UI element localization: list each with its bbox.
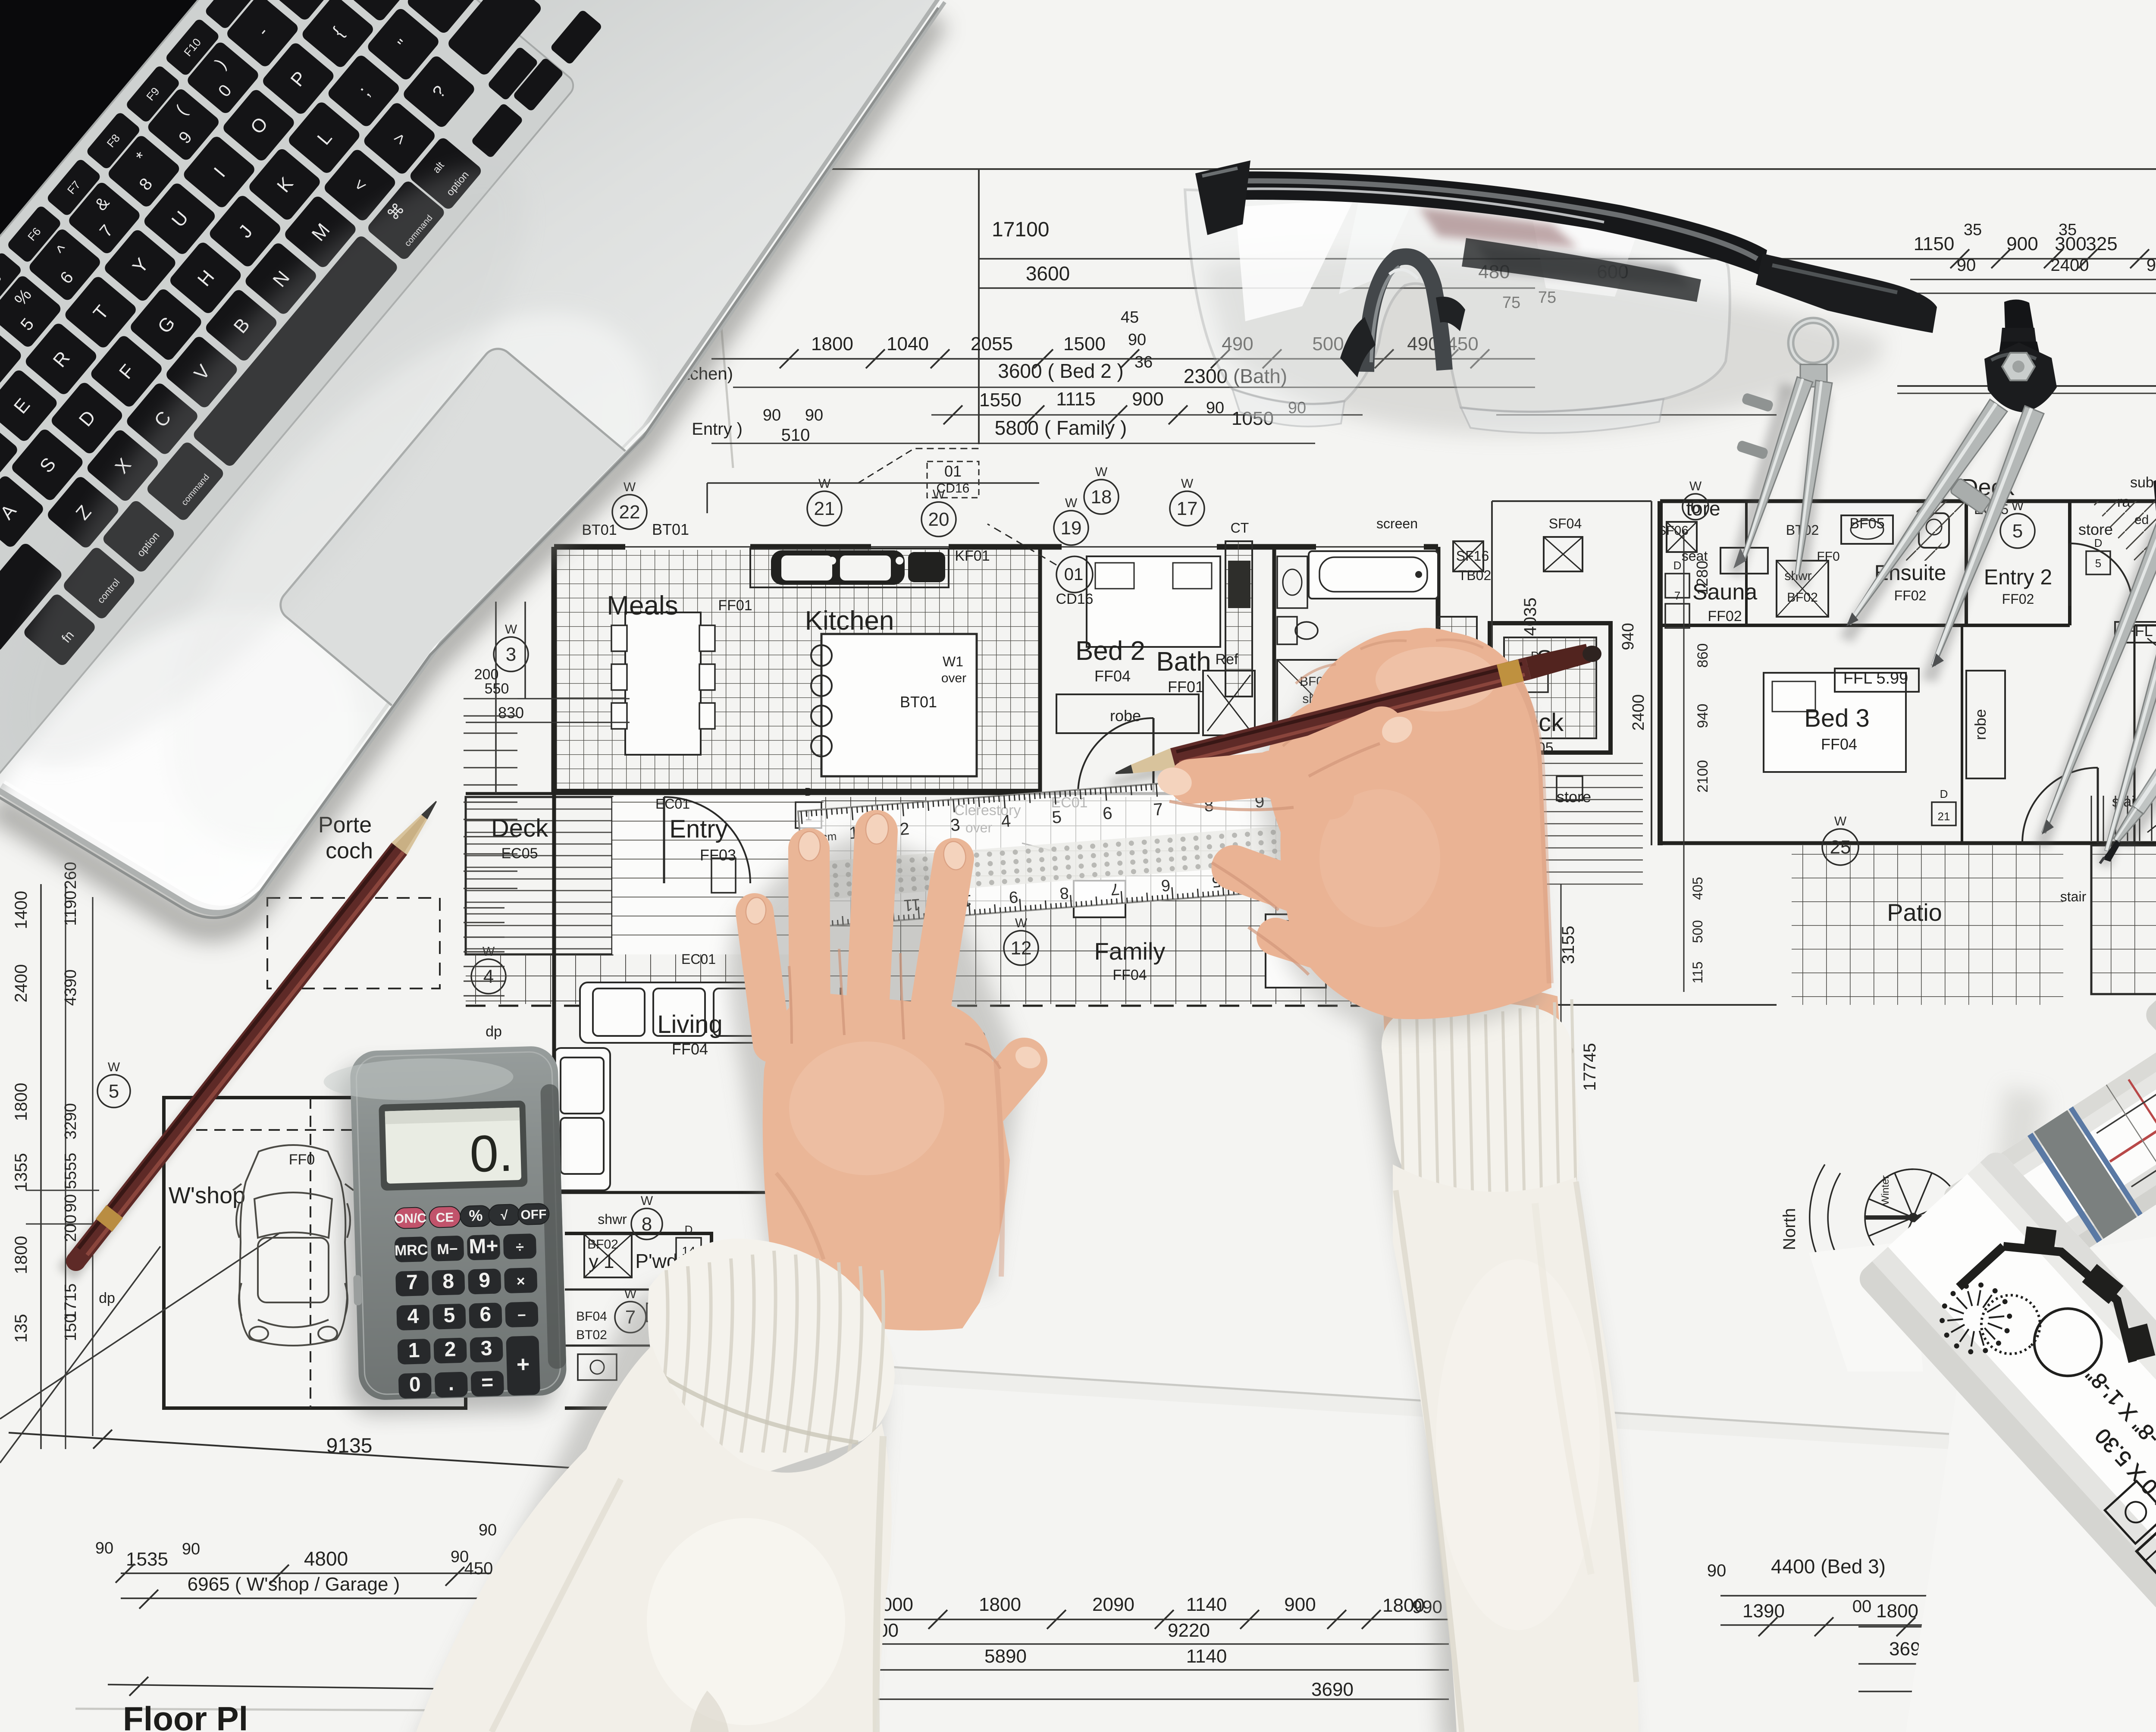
svg-text:18: 18 — [1091, 486, 1112, 508]
svg-text:W: W — [2012, 499, 2024, 513]
svg-text:KF01: KF01 — [955, 548, 990, 564]
svg-text:Kitchen: Kitchen — [805, 606, 894, 636]
svg-text:W: W — [641, 1194, 653, 1208]
svg-text:Family: Family — [1094, 938, 1166, 965]
svg-text:FF02: FF02 — [1708, 608, 1742, 624]
svg-text:Bed 2: Bed 2 — [1075, 636, 1145, 666]
svg-text:90: 90 — [62, 1194, 80, 1212]
svg-text:W: W — [505, 622, 517, 637]
svg-text:2: 2 — [899, 819, 910, 839]
svg-text:3690: 3690 — [1311, 1679, 1354, 1700]
svg-text:90: 90 — [2147, 256, 2156, 275]
svg-text:stair: stair — [2060, 889, 2087, 904]
svg-text:17745: 17745 — [1580, 1043, 1599, 1091]
svg-text:3: 3 — [950, 816, 961, 835]
svg-text:2400: 2400 — [12, 964, 31, 1003]
svg-text:2090: 2090 — [1092, 1594, 1134, 1615]
svg-text:W: W — [1065, 496, 1078, 510]
svg-text:4390: 4390 — [62, 970, 80, 1006]
svg-text:Entry 2: Entry 2 — [1984, 565, 2052, 589]
svg-text:21: 21 — [814, 498, 835, 519]
svg-text:1280: 1280 — [1693, 561, 1711, 595]
svg-text:Meals: Meals — [607, 591, 678, 621]
svg-text:90: 90 — [1206, 399, 1224, 417]
svg-text:3600 ( Bed 2 ): 3600 ( Bed 2 ) — [998, 360, 1124, 382]
svg-text:90: 90 — [1128, 331, 1146, 349]
svg-text:1390: 1390 — [1742, 1600, 1785, 1622]
svg-text:W: W — [1834, 814, 1847, 828]
svg-text:550: 550 — [485, 681, 509, 697]
svg-text:5: 5 — [2012, 521, 2023, 542]
svg-text:1800: 1800 — [1876, 1600, 1918, 1622]
svg-text:Ref: Ref — [1216, 651, 1238, 668]
svg-text:00: 00 — [1852, 1597, 1872, 1616]
svg-text:135: 135 — [12, 1314, 31, 1343]
svg-text:9220: 9220 — [1168, 1620, 1210, 1641]
svg-text:5: 5 — [443, 1304, 455, 1327]
svg-text:900: 900 — [1132, 389, 1163, 410]
svg-text:BT01: BT01 — [582, 522, 617, 538]
svg-text:2400: 2400 — [2051, 256, 2089, 275]
svg-text:dp: dp — [486, 1023, 502, 1040]
svg-text:1800: 1800 — [12, 1236, 31, 1274]
svg-text:1190: 1190 — [62, 891, 80, 926]
svg-text:%: % — [469, 1206, 483, 1224]
svg-text:4035: 4035 — [1521, 598, 1540, 636]
svg-text:CT: CT — [1231, 520, 1249, 536]
svg-text:−: − — [517, 1307, 526, 1324]
svg-text:ed: ed — [2134, 513, 2149, 527]
svg-text:9135: 9135 — [326, 1434, 373, 1457]
svg-text:Winter: Winter — [1880, 1175, 1891, 1205]
svg-text:M+: M+ — [469, 1234, 498, 1258]
svg-text:36: 36 — [1134, 353, 1153, 371]
svg-text:dp: dp — [99, 1290, 115, 1306]
svg-text:BF02: BF02 — [587, 1237, 618, 1252]
svg-text:W'shop: W'shop — [169, 1183, 245, 1208]
svg-text:8: 8 — [642, 1214, 652, 1235]
svg-text:35: 35 — [2059, 221, 2077, 239]
svg-text:3290: 3290 — [62, 1103, 80, 1140]
svg-text:12: 12 — [1011, 938, 1032, 959]
svg-text:store: store — [1557, 788, 1591, 806]
svg-text:√: √ — [501, 1208, 508, 1223]
svg-text:4: 4 — [1000, 812, 1012, 831]
svg-text:4800: 4800 — [304, 1547, 348, 1570]
svg-text:0: 0 — [409, 1373, 421, 1396]
svg-text:200: 200 — [62, 1214, 80, 1242]
svg-text:3: 3 — [480, 1337, 492, 1360]
svg-text:6: 6 — [1160, 876, 1171, 894]
svg-text:1400: 1400 — [12, 891, 31, 929]
svg-text:45: 45 — [1121, 308, 1139, 326]
svg-text:ra: ra — [2117, 494, 2130, 510]
svg-text:FF02: FF02 — [1894, 588, 1927, 603]
svg-text:0.: 0. — [469, 1124, 514, 1183]
svg-text:W: W — [1181, 477, 1194, 491]
svg-text:Entry: Entry — [669, 815, 727, 843]
svg-text:5800 ( Family ): 5800 ( Family ) — [995, 417, 1127, 439]
svg-text:.: . — [448, 1372, 454, 1395]
svg-text:5: 5 — [109, 1081, 119, 1102]
svg-text:W: W — [108, 1060, 120, 1074]
svg-text:35: 35 — [1964, 221, 1982, 239]
svg-text:1800: 1800 — [811, 333, 853, 355]
svg-text:BT01: BT01 — [900, 693, 937, 711]
svg-text:90: 90 — [1707, 1561, 1727, 1580]
svg-text:90: 90 — [95, 1539, 113, 1557]
svg-text:EC01: EC01 — [681, 951, 716, 967]
svg-text:17: 17 — [1177, 498, 1198, 519]
svg-text:17100: 17100 — [992, 218, 1049, 241]
svg-text:Bath: Bath — [1156, 647, 1211, 677]
svg-text:405: 405 — [1690, 877, 1705, 900]
svg-text:BT01: BT01 — [652, 521, 689, 538]
svg-text:22: 22 — [619, 502, 640, 523]
svg-text:940: 940 — [1695, 704, 1711, 728]
svg-text:screen: screen — [1376, 516, 1418, 531]
svg-text:=: = — [481, 1371, 494, 1394]
svg-text:1040: 1040 — [887, 333, 929, 355]
svg-text:Patio: Patio — [1887, 899, 1942, 926]
svg-text:9: 9 — [479, 1269, 491, 1292]
svg-text:8: 8 — [442, 1270, 454, 1293]
svg-text:1800: 1800 — [979, 1594, 1021, 1615]
svg-text:01: 01 — [944, 462, 962, 480]
svg-text:510: 510 — [781, 426, 810, 445]
svg-text:FF04: FF04 — [1821, 735, 1857, 753]
svg-text:FF01: FF01 — [1168, 678, 1204, 696]
svg-text:MRC: MRC — [394, 1242, 428, 1259]
svg-text:7: 7 — [406, 1271, 418, 1294]
svg-text:North: North — [1780, 1208, 1799, 1250]
svg-text:FF04: FF04 — [1112, 967, 1147, 983]
svg-text:1550: 1550 — [979, 389, 1022, 411]
svg-text:W: W — [1095, 465, 1108, 479]
svg-text:6: 6 — [1102, 803, 1113, 823]
svg-text:21: 21 — [1938, 810, 1950, 823]
svg-text:19: 19 — [1061, 518, 1082, 539]
svg-text:OFF: OFF — [520, 1207, 547, 1222]
svg-text:7: 7 — [1110, 880, 1120, 898]
svg-text:5890: 5890 — [984, 1646, 1027, 1667]
svg-text:900: 900 — [2006, 233, 2038, 254]
svg-text:W1: W1 — [943, 654, 963, 669]
svg-text:3: 3 — [506, 644, 516, 665]
svg-text:Living: Living — [657, 1010, 723, 1039]
svg-text:D: D — [2094, 537, 2103, 549]
svg-text:2400: 2400 — [1630, 694, 1648, 731]
svg-text:860: 860 — [1695, 643, 1711, 668]
svg-text:940: 940 — [1619, 623, 1637, 650]
svg-text:5: 5 — [1051, 807, 1062, 827]
svg-text:coch: coch — [326, 838, 373, 863]
svg-text:FF03: FF03 — [700, 846, 736, 864]
svg-text:+: + — [516, 1352, 530, 1377]
svg-text:Entry ): Entry ) — [692, 420, 743, 439]
svg-text:8: 8 — [1059, 884, 1069, 902]
svg-text:150: 150 — [62, 1314, 80, 1341]
svg-text:FF04: FF04 — [1094, 667, 1131, 685]
svg-text:D: D — [685, 1223, 693, 1236]
svg-text:90: 90 — [479, 1521, 497, 1539]
svg-text:3155: 3155 — [1559, 926, 1578, 964]
svg-text:D: D — [805, 785, 813, 798]
svg-text:7: 7 — [1153, 800, 1164, 819]
svg-text:1140: 1140 — [1186, 1646, 1227, 1667]
svg-text:9: 9 — [1008, 888, 1018, 906]
svg-text:Floor Pl: Floor Pl — [123, 1700, 248, 1732]
svg-text:115: 115 — [1690, 961, 1705, 983]
svg-text:FF01: FF01 — [718, 597, 752, 614]
svg-text:3600: 3600 — [1026, 262, 1070, 285]
svg-text:FF02: FF02 — [2002, 591, 2034, 607]
svg-text:900: 900 — [1284, 1594, 1316, 1615]
svg-text:FFL 5.99: FFL 5.99 — [1843, 669, 1908, 687]
svg-text:1500: 1500 — [1063, 333, 1106, 355]
svg-text:4400 (Bed 3): 4400 (Bed 3) — [1771, 1555, 1886, 1578]
svg-text:5: 5 — [2095, 557, 2101, 570]
svg-text:W: W — [1689, 479, 1702, 493]
svg-text:1800: 1800 — [12, 1083, 31, 1121]
svg-text:90: 90 — [805, 406, 823, 424]
svg-text:ON/C: ON/C — [394, 1211, 427, 1226]
svg-text:7: 7 — [1674, 589, 1680, 602]
svg-text:TB02: TB02 — [1458, 568, 1491, 583]
svg-text:1355: 1355 — [12, 1153, 31, 1192]
svg-text:FF0: FF0 — [289, 1152, 315, 1168]
svg-text:2100: 2100 — [1695, 760, 1711, 793]
svg-text:over: over — [941, 671, 966, 685]
svg-text:6: 6 — [1690, 496, 1701, 518]
svg-text:25: 25 — [1830, 837, 1851, 858]
svg-text:20: 20 — [928, 509, 950, 530]
svg-text:D: D — [1940, 788, 1948, 800]
svg-text:325: 325 — [2086, 233, 2117, 254]
svg-text:robe: robe — [1971, 709, 1989, 740]
svg-text:W: W — [624, 1287, 637, 1301]
svg-text:BF02: BF02 — [1787, 590, 1818, 605]
svg-text:D: D — [1673, 559, 1682, 572]
svg-text:830: 830 — [498, 704, 524, 722]
svg-text:FF04: FF04 — [672, 1040, 708, 1058]
svg-text:Bed 3: Bed 3 — [1804, 704, 1870, 732]
svg-text:÷: ÷ — [516, 1239, 524, 1256]
svg-text:sub: sub — [2130, 474, 2154, 491]
svg-text:2055: 2055 — [971, 333, 1013, 355]
svg-text:1115: 1115 — [1056, 389, 1095, 410]
svg-text:CE: CE — [436, 1210, 454, 1225]
svg-text:M−: M− — [437, 1241, 458, 1258]
svg-text:SF04: SF04 — [1549, 516, 1582, 531]
svg-text:6: 6 — [479, 1303, 492, 1326]
svg-text:CD16: CD16 — [1056, 591, 1094, 607]
svg-text:450: 450 — [464, 1559, 493, 1578]
svg-text:1: 1 — [408, 1339, 420, 1362]
svg-text:shwr: shwr — [598, 1211, 627, 1227]
svg-text:1150: 1150 — [1914, 233, 1955, 254]
svg-text:4: 4 — [407, 1305, 419, 1328]
svg-text:90: 90 — [763, 406, 781, 424]
svg-text:BF04: BF04 — [576, 1309, 607, 1324]
svg-text:×: × — [516, 1273, 525, 1290]
svg-text:W: W — [1015, 916, 1028, 930]
svg-text:5555: 5555 — [62, 1153, 80, 1189]
svg-text:01: 01 — [1064, 565, 1084, 584]
svg-text:BT02: BT02 — [576, 1328, 607, 1342]
svg-text:6965 ( W'shop / Garage ): 6965 ( W'shop / Garage ) — [188, 1574, 400, 1595]
svg-text:500: 500 — [1690, 920, 1705, 943]
svg-text:2: 2 — [444, 1338, 456, 1361]
svg-text:robe: robe — [1110, 707, 1141, 725]
svg-text:90: 90 — [182, 1540, 200, 1558]
svg-text:EC01: EC01 — [655, 796, 690, 812]
svg-text:1140: 1140 — [1186, 1594, 1227, 1615]
svg-text:Deck: Deck — [491, 814, 548, 842]
